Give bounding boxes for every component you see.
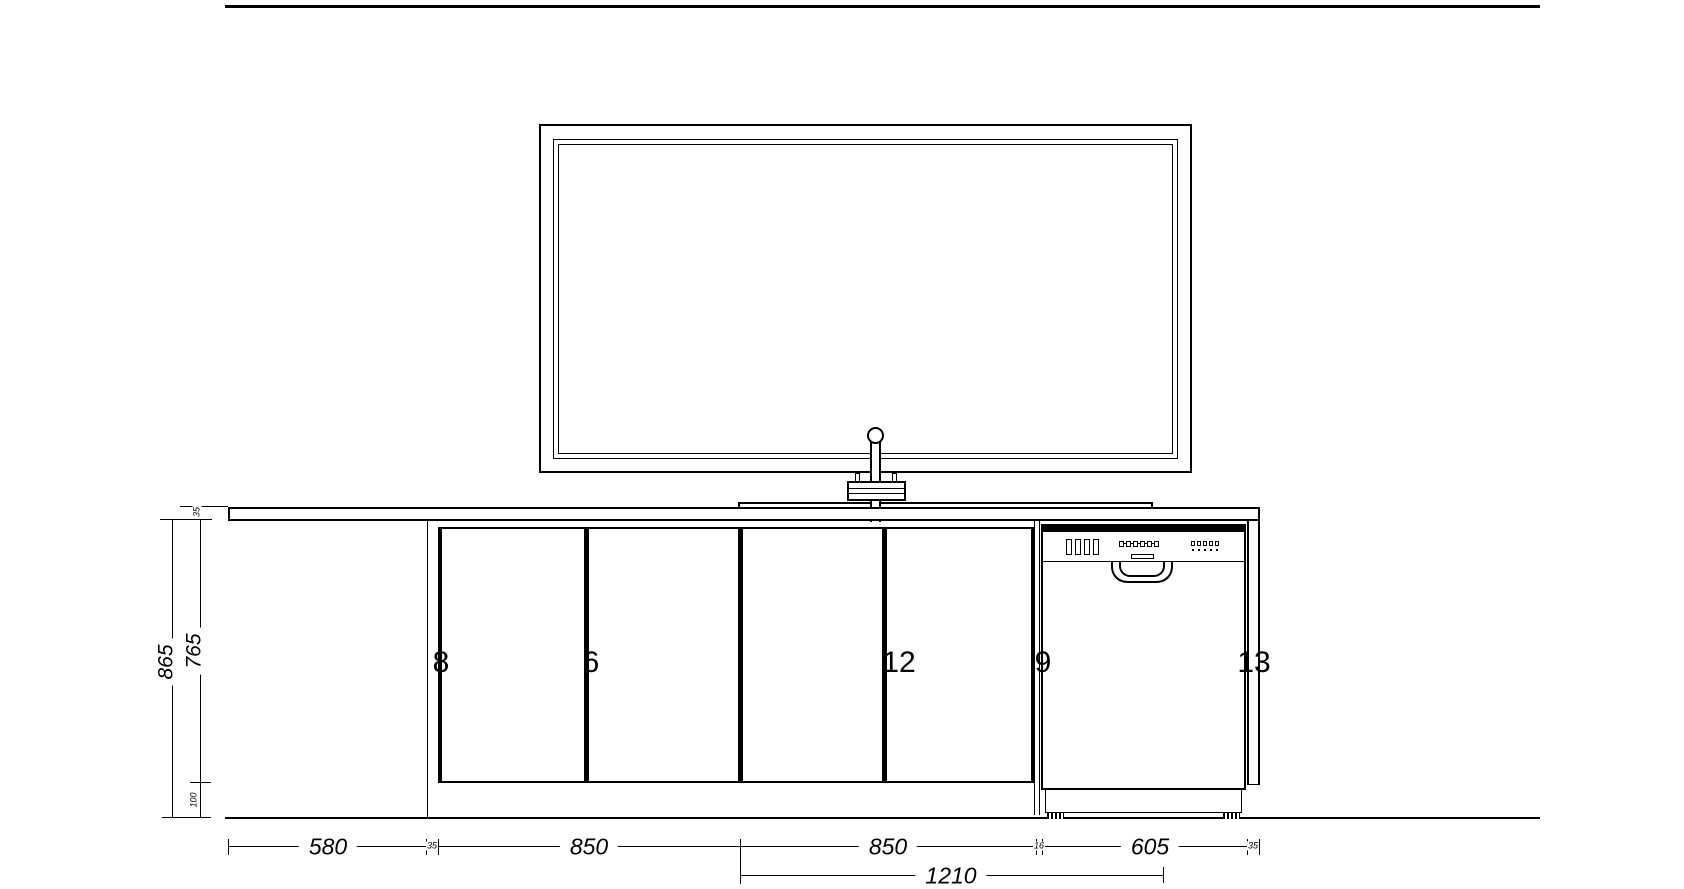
dim-35b: 35 (1247, 842, 1259, 851)
dishwasher-indicator (1197, 541, 1201, 546)
unit-label-8: 8 (433, 648, 450, 678)
dim-tick (190, 782, 211, 783)
dishwasher-vent-slot (1084, 539, 1090, 555)
dishwasher-indicator (1191, 541, 1195, 546)
floor-line (225, 817, 1540, 819)
dishwasher-indicator (1209, 541, 1213, 546)
kitchen-elevation-drawing: 8 6 12 9 13 35 865 765 100 580 35 850 85… (0, 0, 1684, 889)
faucet (840, 420, 920, 510)
dishwasher-plinth (1045, 790, 1242, 813)
dim-tick (160, 519, 212, 520)
faucet-body-line (849, 493, 904, 494)
dim-tick (438, 839, 439, 855)
dim-counter-height: 865 (156, 638, 177, 685)
dim-605: 605 (1121, 836, 1179, 859)
dim-tick (740, 839, 741, 884)
dim-plinth-height: 100 (190, 791, 199, 808)
dim-tick (1163, 867, 1164, 883)
dishwasher-indicator-mark (1216, 549, 1218, 551)
dim-580: 580 (299, 836, 357, 859)
dishwasher-button (1126, 541, 1131, 547)
dishwasher-foot (1223, 813, 1240, 819)
dishwasher (1041, 524, 1247, 820)
base-cabinet-run (438, 527, 1034, 783)
dishwasher-display-bar (1131, 554, 1154, 559)
dishwasher-indicator (1203, 541, 1207, 546)
unit-label-9: 9 (1035, 648, 1052, 678)
dishwasher-door-top-edge (1041, 524, 1246, 532)
dishwasher-button (1140, 541, 1145, 547)
dishwasher-indicator-mark (1192, 549, 1194, 551)
faucet-body-line (849, 488, 904, 489)
dishwasher-foot (1047, 813, 1064, 819)
faucet-spout-top (867, 427, 884, 444)
dishwasher-button (1133, 541, 1138, 547)
top-wall-line (225, 5, 1540, 8)
dishwasher-indicator-mark (1204, 549, 1206, 551)
dim-tick (1259, 839, 1260, 855)
dim-35a: 35 (426, 842, 438, 851)
unit-label-6: 6 (583, 648, 600, 678)
dishwasher-button (1147, 541, 1152, 547)
dim-16: 16 (1033, 842, 1045, 851)
dim-850a: 850 (560, 836, 618, 859)
dishwasher-button (1154, 541, 1159, 547)
dim-worktop-thickness: 35 (193, 506, 202, 518)
worktop (228, 507, 1260, 521)
dishwasher-button (1119, 541, 1124, 547)
dishwasher-indicator-mark (1198, 549, 1200, 551)
dishwasher-handle-inner (1119, 562, 1165, 577)
dishwasher-vent-slot (1066, 539, 1072, 555)
window-glass (558, 144, 1173, 454)
dim-tick (162, 817, 211, 818)
dishwasher-vent-slot (1093, 539, 1099, 555)
unit-label-13: 13 (1237, 648, 1270, 678)
dishwasher-indicator (1215, 541, 1219, 546)
dishwasher-indicator-mark (1210, 549, 1212, 551)
dim-tick (228, 839, 229, 855)
dim-850b: 850 (859, 836, 917, 859)
dim-carcass-height: 765 (184, 627, 205, 674)
cabinet-side-panel-left (427, 521, 428, 818)
dishwasher-button-rail (1119, 543, 1159, 544)
dim-line-bottom (228, 846, 1260, 847)
dim-tick (180, 506, 228, 507)
dishwasher-vent-slot (1075, 539, 1081, 555)
dim-1210: 1210 (915, 865, 986, 888)
door-divider (738, 527, 743, 783)
faucet-mixer-body (847, 481, 906, 501)
unit-label-12: 12 (882, 648, 915, 678)
